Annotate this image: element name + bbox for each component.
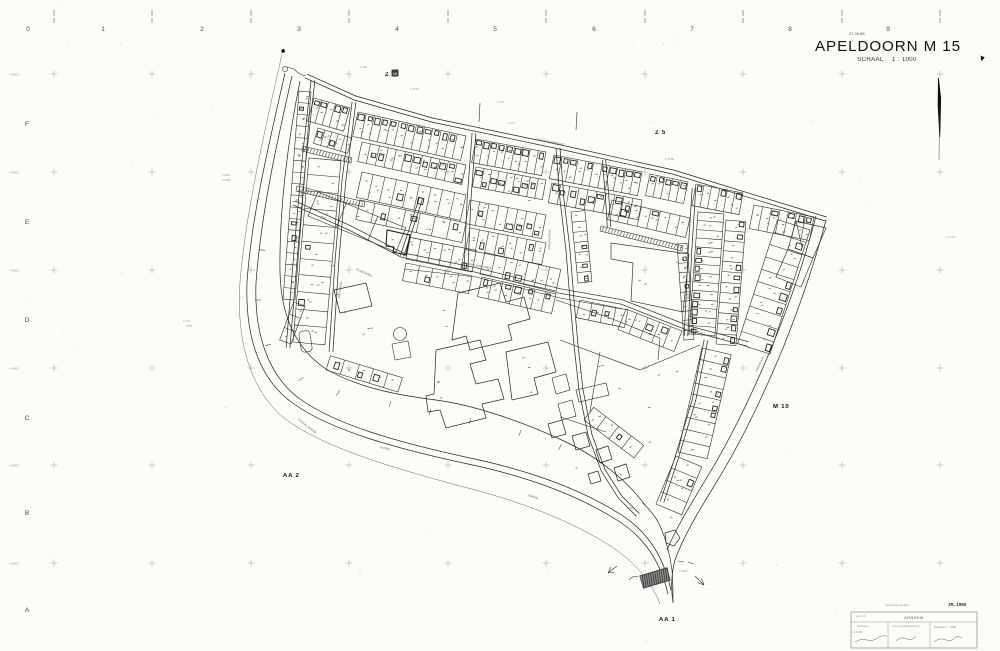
svg-text:7: 7: [690, 26, 694, 33]
svg-text:± 270: ± 270: [508, 121, 515, 125]
svg-text:± 2755: ± 2755: [222, 178, 231, 182]
svg-text:Z 5: Z 5: [655, 130, 666, 136]
svg-text:F: F: [25, 121, 29, 128]
svg-text:± 2750: ± 2750: [665, 157, 674, 161]
svg-text:reproductie de dato: reproductie de dato: [885, 603, 910, 607]
svg-text:2: 2: [200, 26, 204, 33]
svg-text:4: 4: [395, 26, 399, 33]
svg-text:− 46800: − 46800: [8, 171, 19, 175]
svg-text:C: C: [25, 415, 30, 422]
svg-text:landmeter: landmeter: [857, 624, 869, 628]
svg-text:E: E: [25, 219, 30, 226]
svg-text:B: B: [25, 510, 29, 517]
svg-text:8: 8: [788, 26, 792, 33]
svg-text:± 500: ± 500: [627, 506, 634, 510]
svg-text:JR. 1980: JR. 1980: [948, 602, 967, 607]
svg-text:± 2770: ± 2770: [410, 87, 419, 91]
svg-text:M 10: M 10: [773, 404, 790, 410]
svg-text:5: 5: [493, 26, 497, 33]
svg-text:Z: Z: [385, 72, 389, 78]
svg-text:− 46800: − 46800: [8, 73, 19, 77]
svg-text:D: D: [25, 317, 30, 324]
svg-text:AA 2: AA 2: [283, 473, 300, 479]
svg-text:9: 9: [886, 26, 890, 33]
svg-text:− 46800: − 46800: [8, 562, 19, 566]
svg-text:± 260: ± 260: [222, 173, 230, 177]
svg-text:2755: 2755: [186, 324, 193, 328]
svg-text:•: •: [650, 119, 651, 123]
svg-text:APELDOORN M 15: APELDOORN M 15: [815, 38, 961, 55]
svg-text:0: 0: [26, 26, 30, 33]
svg-text:− 46800: − 46800: [8, 464, 19, 468]
svg-text:ARNHEM: ARNHEM: [904, 616, 923, 620]
svg-text:− 46800: − 46800: [8, 367, 19, 371]
svg-text:± 290: ± 290: [360, 65, 367, 69]
svg-text:3: 3: [297, 26, 301, 33]
svg-text:SCHAAL 1 : 1000: SCHAAL 1 : 1000: [857, 57, 917, 63]
svg-text:voor eensluidend afschrift: voor eensluidend afschrift: [892, 625, 920, 628]
svg-text:6: 6: [592, 26, 596, 33]
svg-text:gez. d.d.: gez. d.d.: [856, 614, 866, 618]
svg-text:SCHAAL 1 : 1000: SCHAAL 1 : 1000: [934, 625, 956, 629]
svg-text:18: 18: [393, 71, 398, 76]
svg-text:AA 1: AA 1: [659, 617, 676, 623]
svg-text:± 2770: ± 2770: [946, 235, 955, 239]
svg-text:21 JA 88: 21 JA 88: [849, 31, 865, 36]
svg-text:STATIONSTRAAT: STATIONSTRAAT: [547, 229, 552, 250]
svg-text:A: A: [25, 607, 30, 614]
svg-text:± 276: ± 276: [183, 319, 190, 323]
svg-text:1: 1: [101, 26, 105, 33]
svg-text:− 46800: − 46800: [8, 269, 19, 273]
svg-text:21 JA 88: 21 JA 88: [852, 630, 863, 634]
svg-text:± 4070: ± 4070: [679, 569, 688, 573]
svg-text:± 275: ± 275: [497, 100, 504, 104]
